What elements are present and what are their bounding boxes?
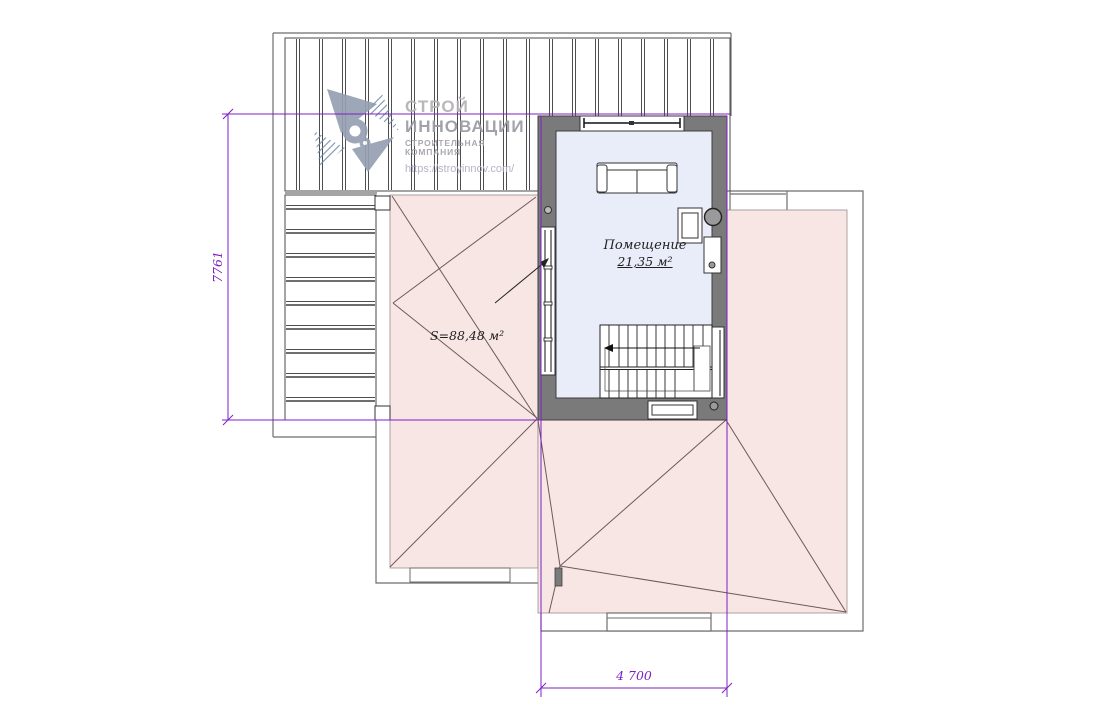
plan-linework xyxy=(0,0,1119,728)
room-name-label: Помещение xyxy=(598,238,692,253)
window-bottom xyxy=(648,401,697,419)
window-left xyxy=(541,227,555,375)
total-area-label: S=88,48 м² xyxy=(430,328,520,343)
eave-step xyxy=(410,568,510,582)
dimension-horizontal-label: 4 700 xyxy=(600,668,668,683)
column-post-top xyxy=(375,196,390,210)
balcony-outline xyxy=(607,613,711,631)
staircase xyxy=(600,325,712,398)
floor-plan-canvas: СТРОЙ ИННОВАЦИИ СТРОИТЕЛЬНАЯ КОМПАНИЯ ht… xyxy=(0,0,1119,728)
room-area-label: 21,35 м² xyxy=(598,254,692,269)
dimension-vertical-label: 7761 xyxy=(195,246,239,288)
wall-niche-right xyxy=(704,237,721,273)
wall-vent-bottom xyxy=(710,402,718,410)
column-post-bottom xyxy=(375,406,390,420)
window-top xyxy=(580,116,684,131)
wall-vent-left xyxy=(545,207,552,214)
stair-landing xyxy=(694,346,710,391)
chimney-pipe xyxy=(705,209,722,226)
post-small xyxy=(555,568,562,586)
sofa xyxy=(597,163,677,193)
